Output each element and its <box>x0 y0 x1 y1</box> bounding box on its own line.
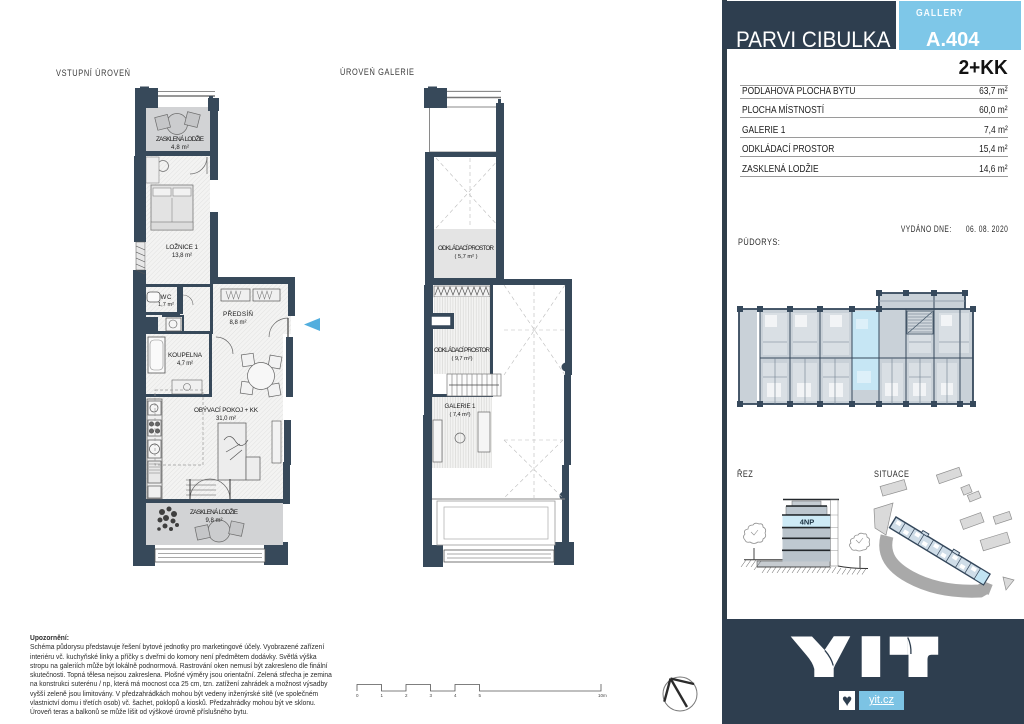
svg-text:31,0 m²: 31,0 m² <box>216 416 236 422</box>
svg-text:4,7 m²: 4,7 m² <box>177 361 193 367</box>
svg-text:PŘEDSÍŇ: PŘEDSÍŇ <box>223 309 253 318</box>
svg-text:( 7,4 m²): ( 7,4 m²) <box>450 412 471 418</box>
svg-text:( 9,7 m²): ( 9,7 m²) <box>452 356 473 362</box>
svg-text:13,8 m²: 13,8 m² <box>172 253 192 259</box>
svg-text:ODKLÁDACÍ PROSTOR: ODKLÁDACÍ PROSTOR <box>434 347 491 354</box>
svg-text:2: 2 <box>405 693 408 698</box>
svg-text:WC: WC <box>161 294 173 301</box>
svg-text:4,8 m²: 4,8 m² <box>171 145 189 151</box>
svg-text:4NP: 4NP <box>800 518 815 527</box>
svg-text:1: 1 <box>381 693 384 698</box>
svg-text:3: 3 <box>430 693 433 698</box>
svg-text:4: 4 <box>454 693 457 698</box>
svg-text:ZASKLENÁ LODŽIE: ZASKLENÁ LODŽIE <box>156 134 204 143</box>
svg-text:8,8 m²: 8,8 m² <box>230 320 247 326</box>
svg-text:5: 5 <box>479 693 482 698</box>
svg-text:( 5,7 m² ): ( 5,7 m² ) <box>455 254 478 260</box>
svg-text:LOŽNICE 1: LOŽNICE 1 <box>166 242 198 251</box>
svg-text:GALERIE 1: GALERIE 1 <box>445 403 477 410</box>
svg-text:ODKLÁDACÍ PROSTOR: ODKLÁDACÍ PROSTOR <box>438 245 495 252</box>
svg-text:10m: 10m <box>598 693 607 698</box>
svg-text:0: 0 <box>356 693 359 698</box>
svg-text:1,7 m²: 1,7 m² <box>158 302 174 308</box>
svg-text:OBÝVACÍ POKOJ + KK: OBÝVACÍ POKOJ + KK <box>194 405 259 414</box>
svg-text:9,8 m²: 9,8 m² <box>206 518 223 524</box>
svg-text:KOUPELNA: KOUPELNA <box>168 352 203 359</box>
svg-text:ZASKLENÁ LODŽIE: ZASKLENÁ LODŽIE <box>190 507 238 516</box>
